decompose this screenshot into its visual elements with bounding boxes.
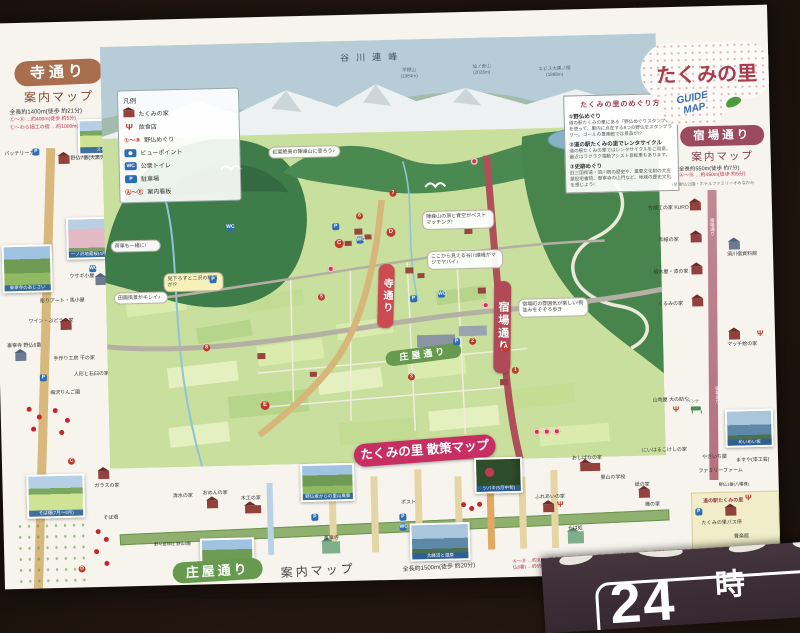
parking-icon: P [32,148,39,155]
road-name-vertical: 宿場通り [714,386,720,404]
wc-icon: WC [357,237,364,244]
spot-label: 野々宮神社 野仏4番 [154,541,191,547]
fork-knife-icon: Ψ [673,405,680,414]
cherry-icon [96,529,101,534]
house-icon [58,156,69,164]
parking-icon: P [40,374,47,381]
spot-label: ますや(漆工芸) [736,457,769,464]
photo-marsh: 大峰沼と湿原 [410,522,471,561]
fork-knife-icon: Ψ [124,122,135,132]
callout-bubble: 紅葉絶景の陣峰山に登ろう♪ [268,145,340,159]
camera-icon [124,149,136,157]
berry-icon [461,502,466,507]
spot-label: たくみの里バス停 [702,519,742,526]
photo-street: めいめい坂 [725,409,774,448]
peak-label: 仙ノ倉山 (2026m) [472,63,491,74]
guide-map-board: 寺通り 案内マップ 全長約1400m(徒歩 約21分) Ⓒ〜Ⓓ …約400m(徒… [0,5,781,590]
tera-dist-1: Ⓒ〜Ⓓ …約400m(徒歩 約5分) [9,116,76,124]
house-icon [729,331,740,339]
spot-label: くるみの家 [658,301,683,308]
fork-knife-icon: Ψ [745,493,752,502]
fork-knife-icon: Ψ [557,500,564,509]
spot-label: 清水の家 [173,493,193,499]
wc-icon: WC [89,265,96,272]
shoya-strip-map: 清水の家 おめんの家 木工の家 野仏坂からの里山風景 P 野々宮神社 野仏4番 … [114,453,676,565]
photo-camellia: ツバキ(5月中旬) [474,457,523,494]
legend-title: 凡例 [123,93,233,106]
tera-street-banner: 寺通り [377,264,395,328]
spot-label: 須川宿資料館 [727,251,757,258]
callout-bubble: 田園風景がキレイ♪ [114,291,168,305]
cherry-icon [104,537,109,542]
shoya-length: 全長約1500m(徒歩 約20分) [402,560,475,573]
spot-label: 手作り工房 干の家 [53,355,95,362]
parking-icon: P [332,223,339,230]
house-icon [98,471,109,479]
spot-label: 竹細工の家 KURO [648,205,689,212]
wc-icon: WC [226,224,233,231]
apple-icon [37,414,42,419]
house-icon [691,266,702,274]
spot-label: 紙の家 [635,482,650,488]
shoya-subtitle: 案内マップ [280,560,356,581]
house-icon [729,241,740,249]
sign-24-number: 24 [608,572,678,632]
shukuba-street-banner: 宿場通り [493,281,511,373]
bench-icon [691,406,701,410]
field-pattern [15,519,90,583]
parking-icon: P [399,514,406,521]
spot-label: 織の家 [645,501,660,507]
spot-label: 野仏7番(大黒天) [70,155,106,162]
spot-label: おしばなの家 [572,455,602,462]
berry-icon [469,506,474,511]
house-icon [207,500,218,508]
wc-icon: WC [125,162,137,170]
spot-label: マッチ絵の家 [727,341,757,348]
spot-label: そば処 [568,525,583,531]
apple-icon [59,430,64,435]
tera-street-header: 寺通り [14,58,103,87]
peak-label: 平標山 (1984m) [400,67,417,78]
shukuba-subtitle: 案内マップ [680,148,764,165]
spot-label: 豊楽館 [734,533,749,539]
cherry-icon [104,561,109,566]
direction-note: ↑至 野仏公園・ホテルファミリーオみなかみ [671,180,754,187]
photo-hydrangea: 泰寧寺のあじさい [2,244,53,293]
spot-label: 人形と石臼の家 [74,371,109,378]
photo-buckwheat-field: そば畑(7月〜8月) [26,473,85,518]
spot-label: ウサギ小屋 [69,273,94,280]
parking-icon: P [695,508,702,515]
mountain-range-label: 谷川連峰 [340,49,404,64]
parking-icon: P [453,338,460,345]
apple-icon [27,407,32,412]
house-icon [245,505,261,513]
house-icon [690,202,701,210]
house-icon [123,110,134,117]
house-icon [692,298,703,306]
house-icon [580,463,600,471]
photo-village-view: 野仏坂からの里山風景 [300,463,355,502]
spot-label: 彫りアート・馬小屋 [40,297,85,304]
spot-label: ポスト [401,499,416,505]
berry-icon [477,502,482,507]
parking-icon: P [209,276,216,283]
house-icon [568,531,584,543]
parking-icon: P [311,514,318,521]
main-illustrated-map: 谷川連峰 平標山 (1984m) 仙ノ倉山 (2026m) エビス大黒ノ頭 (1… [100,33,666,468]
fork-knife-icon: Ψ [757,329,764,338]
torn-paper [792,540,800,550]
wc-icon: WC [438,291,445,298]
road-name-vertical: 宿場通り [709,218,715,236]
cherry-icon [94,549,99,554]
marker-letter-c: C [68,458,75,465]
spot-label: ファミリーファーム [698,467,743,474]
shrine-icon [15,353,26,361]
spot-label: 梅沢りんご園 [50,389,80,396]
legend-box: 凡例 たくみの家 Ψ飲食店 ①〜⑧野仏めぐり ビューポイント WC公衆トイレ P… [117,88,242,204]
tera-street-subtitle: 案内マップ [15,87,103,106]
callout-bubble: 宿場町の雰囲気が楽しい!街並みをそぞろ歩き [518,297,588,317]
guide-title: たくみの里のめぐり方 [568,98,672,111]
callout-bubble: ここから見える谷川連峰がマジでヤバイ♪ [427,249,503,269]
sign-hour-char: 時 [714,570,746,602]
house-icon [543,504,554,512]
peak-label: エビス大黒ノ頭 (1888m) [538,65,570,77]
site-title: たくみの里 [644,57,769,89]
house-icon [639,490,650,498]
parking-icon: P [410,295,417,302]
shukuba-street-header: 宿場通り [680,125,764,147]
shukuba-dist: Ⓐ〜Ⓑ …約450m(徒歩 約5分) [679,171,746,179]
spot-label: 和紙の家 [659,237,679,243]
spot-label: ふれあいの家 [535,494,565,501]
spot-label: やきいち屋 [702,454,727,461]
apple-icon [65,418,70,423]
apple-icon [53,408,58,413]
letter-sign-icon: Ⓐ〜Ⓔ [125,187,143,196]
callout-bubble: 荷車も一緒に! [111,239,161,252]
house-icon [61,322,72,330]
cross-lane [267,483,275,555]
wc-icon: WC [400,524,407,531]
temple-icon [322,541,340,553]
spot-label: 泰寧寺 [324,535,339,541]
parking-icon: P [125,175,137,183]
spot-label: 里山の学校 [600,474,625,481]
numbered-stone-icon: ①〜⑧ [124,135,140,144]
shoya-street-header: 庄屋通り [172,558,263,584]
spot-label: 山肉屋 大の助や [653,397,690,404]
house-icon [725,508,736,516]
apple-icon [31,427,36,432]
cross-lane [370,476,379,552]
spot-label: 木工の家 [241,495,261,501]
spot-label: 植木屋・漆の家 [653,269,688,276]
bench-label: ベンチ [687,398,700,403]
spot-label: おめんの家 [203,490,228,497]
tera-length: 全長約1400m(徒歩 約21分) [9,105,82,116]
callout-bubble: 陣峰山の頂と青空がベストマッチング! [422,209,494,229]
house-icon [691,234,702,242]
spot-label: 野仏1番(八幡様) [719,481,749,487]
